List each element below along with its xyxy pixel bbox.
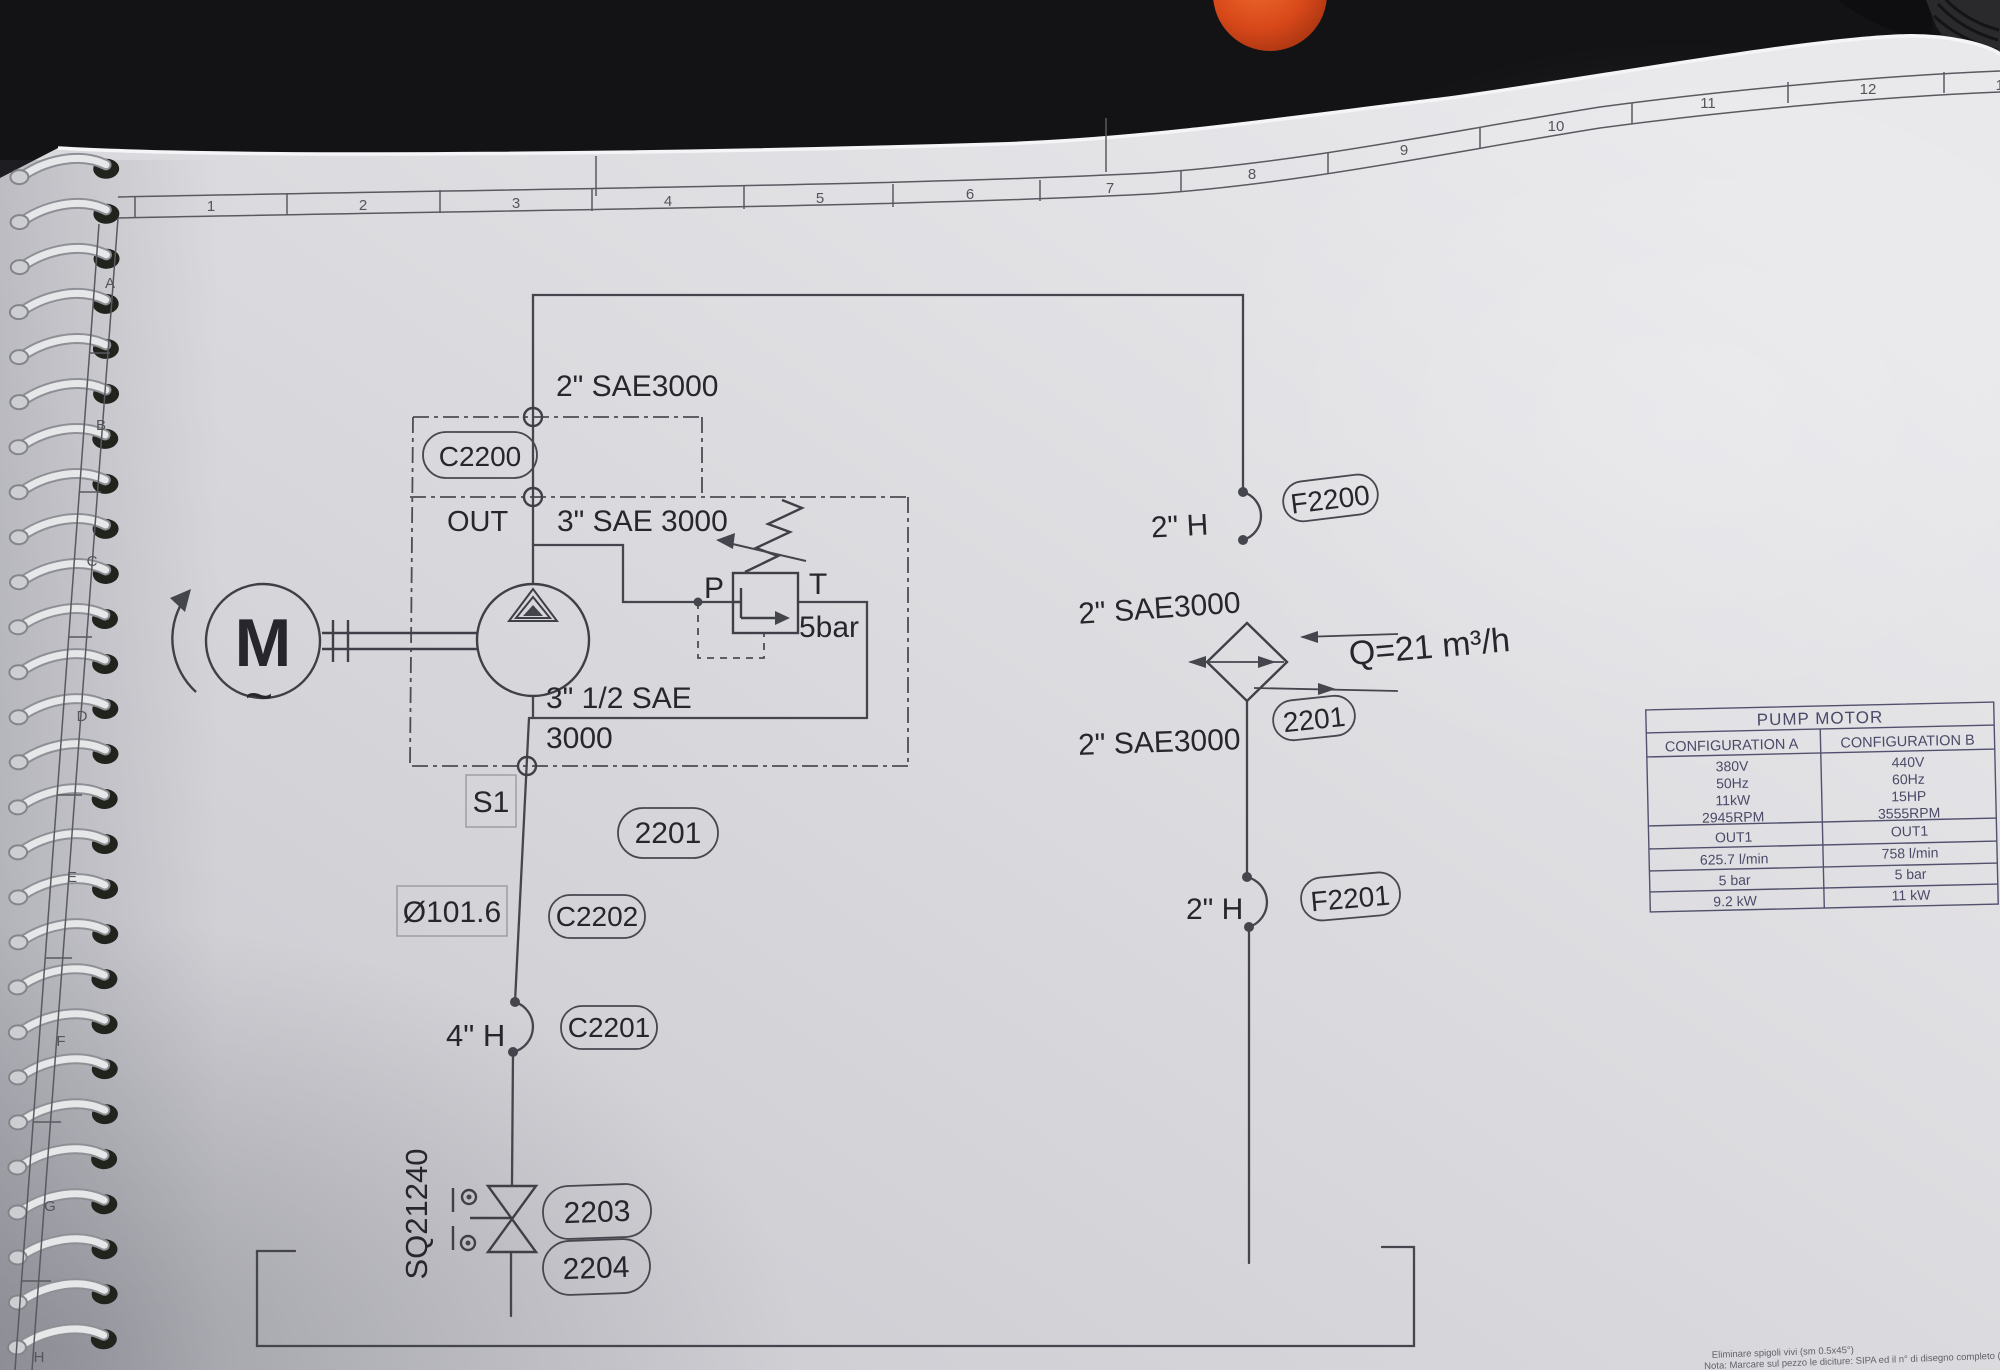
- pipe-label: 3" SAE 3000: [557, 505, 728, 538]
- table-cell: 380V: [1716, 758, 1750, 775]
- tag-label: 2203: [563, 1195, 631, 1230]
- tag-label: 2201: [635, 817, 702, 850]
- photo-of-hydraulic-schematic: 1 2 3 4 5 6 7 8 9 10 11 12 13 A B C D E …: [0, 0, 2000, 1370]
- table-cell: 11 kW: [1892, 887, 1932, 904]
- port-label: OUT: [447, 506, 509, 538]
- tag-label: C2202: [556, 901, 639, 932]
- hose-label: 4" H: [446, 1018, 505, 1053]
- pipe-label: 3" 1/2 SAE: [546, 682, 692, 715]
- table-cell: 2945RPM: [1702, 808, 1765, 825]
- grid-number: 13: [1996, 77, 2000, 94]
- grid-number: 1: [207, 198, 215, 215]
- grid-number: 5: [816, 190, 824, 207]
- table-cell: 15HP: [1891, 788, 1926, 805]
- grid-number: 8: [1248, 166, 1256, 183]
- table-cell: OUT1: [1715, 829, 1753, 846]
- pipe-label: 3000: [546, 722, 613, 755]
- grid-number: 12: [1860, 81, 1877, 98]
- pipe-label: 2" SAE3000: [556, 370, 718, 403]
- table-cell: 9.2 kW: [1713, 892, 1758, 909]
- grid-letter: C: [87, 553, 98, 570]
- tag-label: C2201: [568, 1012, 651, 1043]
- grid-letter: G: [44, 1198, 56, 1215]
- grid-number: 7: [1106, 180, 1114, 197]
- grid-number: 10: [1548, 118, 1565, 135]
- tag-label: 2201: [1282, 701, 1347, 738]
- tag-label: S1: [473, 786, 510, 819]
- valve-port-label: T: [809, 568, 827, 601]
- grid-letter: B: [96, 417, 106, 434]
- valve-setting-label: 5bar: [799, 611, 859, 644]
- suction-lower: [512, 1052, 513, 1185]
- pipe-label: 2" SAE3000: [1078, 723, 1241, 762]
- table-cell: 758 l/min: [1881, 844, 1938, 861]
- paper-sheet: [0, 36, 2000, 1370]
- table-header-a: CONFIGURATION A: [1665, 737, 1799, 756]
- grid-letter: F: [56, 1033, 65, 1050]
- grid-number: 9: [1400, 142, 1408, 159]
- grid-letter: E: [67, 869, 77, 886]
- grid-number: 4: [664, 193, 672, 210]
- table-cell: 60Hz: [1892, 771, 1925, 788]
- table-cell: OUT1: [1891, 823, 1929, 840]
- valve-tag-label: SQ21240: [399, 1149, 434, 1280]
- hose-label: 2" H: [1150, 509, 1209, 545]
- grid-number: 11: [1700, 95, 1716, 112]
- grid-letter: H: [34, 1349, 45, 1366]
- tag-label: 2204: [562, 1251, 630, 1286]
- table-cell: 5 bar: [1718, 872, 1751, 889]
- grid-number: 2: [359, 197, 367, 214]
- table-cell: 625.7 l/min: [1700, 850, 1769, 868]
- tag-label: C2200: [439, 441, 522, 472]
- grid-number: 6: [966, 186, 974, 203]
- table-cell: 3555RPM: [1878, 804, 1941, 821]
- grid-letter: D: [77, 708, 88, 725]
- grid-number: 3: [512, 195, 520, 212]
- table-cell: 5 bar: [1894, 866, 1927, 883]
- table-cell: 440V: [1891, 754, 1925, 771]
- table-cell: 11kW: [1715, 792, 1751, 809]
- diameter-label: Ø101.6: [403, 896, 501, 929]
- motor-phase-symbol: ~: [245, 670, 273, 723]
- hose-label: 2" H: [1186, 893, 1243, 926]
- table-header-b: CONFIGURATION B: [1840, 733, 1975, 752]
- table-title: PUMP MOTOR: [1757, 708, 1884, 730]
- grid-letter: A: [105, 275, 115, 292]
- table-cell: 50Hz: [1716, 775, 1749, 792]
- valve-port-label: P: [704, 572, 724, 605]
